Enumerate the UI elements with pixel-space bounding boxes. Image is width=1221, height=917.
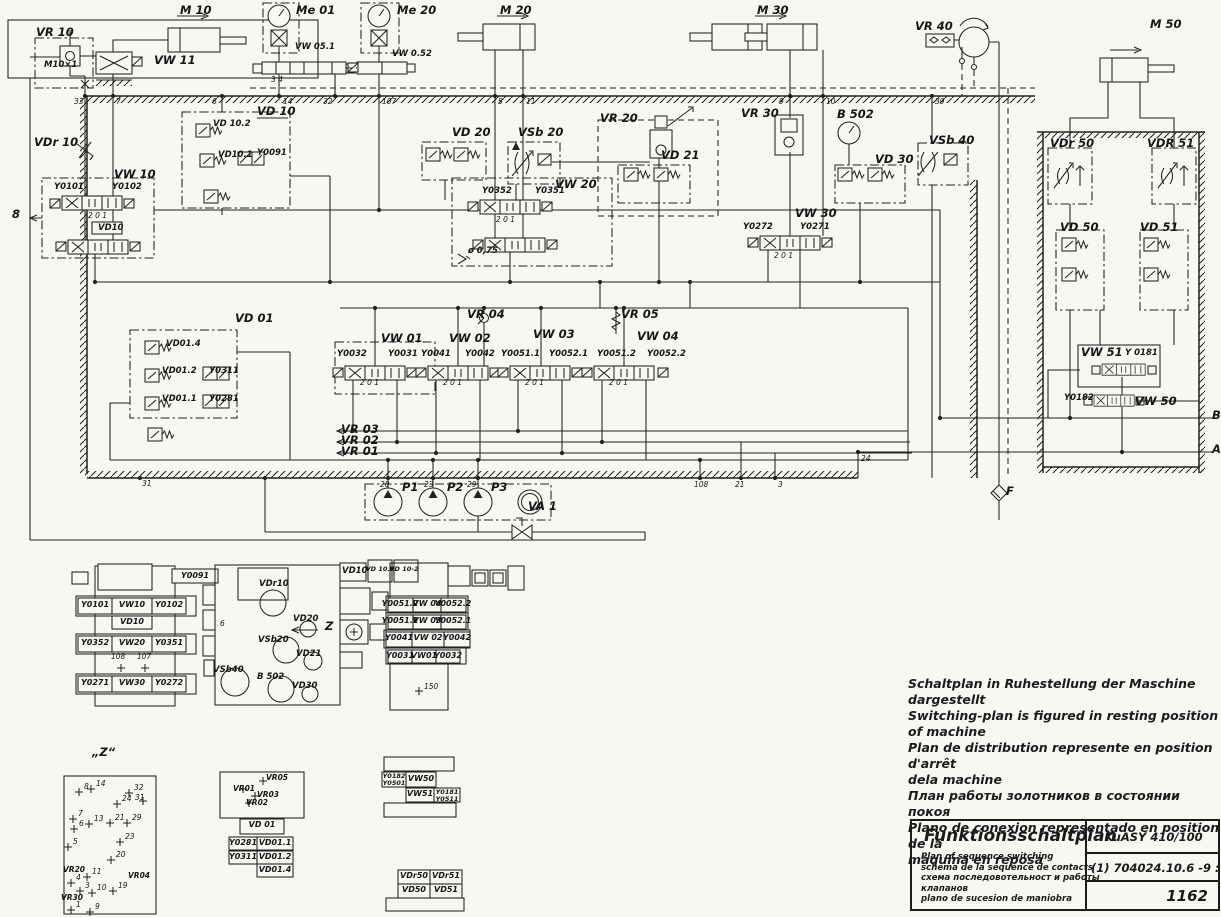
label-b_port: B [1212,410,1221,422]
label-n24: 24 [861,455,871,463]
label-mv6_vdr50: VDr50 [400,872,428,880]
label-z9: 9 [95,903,100,911]
label-p2: P2 [447,482,463,494]
label-y0051_1: Y0051.1 [501,350,540,359]
label-me20: Me 20 [397,5,436,17]
label-z19: 19 [118,882,128,890]
label-mv1_107: 107 [137,653,151,661]
label-m50: M 50 [1150,19,1181,31]
label-z5: 5 [73,838,78,846]
label-z20: 20 [116,851,126,859]
label-y0101: Y0101 [54,183,84,192]
label-mv5_vw50: VW50 [408,775,434,783]
label-mv1_vd10: VD10 [120,618,144,626]
label-vw11: VW 11 [154,55,196,67]
label-m10x1: M10×1 [44,61,77,70]
label-mv3_150: 150 [424,683,438,691]
label-mv1_y0351: Y0351 [155,639,183,647]
subtitle-en: Plan of sequence switching [921,852,1100,863]
label-n33: 33 [74,98,84,106]
note-line-ru: План работы золотников в состоянии покоя [908,788,1220,820]
label-n9: 9 [779,98,784,106]
label-vd01_4: VD01.4 [166,340,201,349]
label-mv1_vw20: VW20 [119,639,145,647]
label-vr30: VR 30 [741,108,779,120]
label-n7: 7 [116,98,121,106]
label-a_port: A [1212,444,1221,456]
label-mv1_y0272: Y0272 [155,679,183,687]
label-z14: 14 [96,780,106,788]
label-vd10s: VD10 [98,224,123,233]
label-mv1_y0101: Y0101 [81,601,109,609]
label-y0352: Y0352 [482,187,512,196]
label-z1: 1 [76,901,81,909]
label-mvr_vd01: VD 01 [249,821,276,829]
label-vw03: VW 03 [533,329,575,341]
label-vw052: VW 0.52 [392,50,432,59]
label-vw04: VW 04 [637,331,679,343]
label-mv1_y0091: Y0091 [181,572,209,580]
label-vdr10: VDr 10 [34,137,78,149]
label-mv2_vsb40: VSb40 [213,666,244,675]
label-z_title: „Z“ [92,747,115,759]
label-vw051: VW 05.1 [295,43,335,52]
label-n31: 31 [142,480,152,488]
label-mvr_vr02: VR02 [246,799,268,807]
drawing-number: (1) 704024.10.6 -9 : 013 [1091,861,1221,875]
label-vdr51: VDR 51 [1147,138,1194,150]
label-y0091: Y0091 [257,149,287,158]
title-block: Funktionsschaltplan Plan of sequence swi… [910,819,1220,911]
sheet-number: 1162 [1166,887,1208,905]
label-y0271: Y0271 [800,223,830,232]
label-mv2_vd21: VD21 [296,650,321,659]
label-y0351: Y0351 [535,187,565,196]
label-vw30: VW 30 [795,208,837,220]
label-mvr_y0281: Y0281 [229,839,257,847]
label-vd01: VD 01 [235,313,273,325]
drawing-number-cell: (1) 704024.10.6 -9 : 013 [1085,852,1220,882]
label-phi075: ø 0,75 [468,247,498,256]
label-z21: 21 [115,814,125,822]
label-zvr04: VR04 [128,872,150,880]
label-p1: P1 [402,482,418,494]
label-z24: 24 [122,795,132,803]
label-va1: VA 1 [528,501,557,513]
label-mv3_y0032: Y0032 [434,652,462,660]
label-z10: 10 [97,884,107,892]
label-vw10: VW 10 [114,169,156,181]
label-n6: 6 [212,98,217,106]
label-y0181: Y 0181 [1125,349,1158,358]
label-vr40: VR 40 [915,21,953,33]
label-mv2_b502: B 502 [257,673,284,682]
subtitle-ru1: схема последовотельност и работы [921,873,1100,884]
model-cell: KuASY 410/100 [1085,821,1220,852]
label-vdr50: VDr 50 [1050,138,1094,150]
label-mv2_vsb20: VSb20 [258,636,289,645]
label-m30: M 30 [757,5,788,17]
hydraulic-schematic-sheet: M 10Me 01Me 20M 20M 30VR 40M 50VR 10VW 1… [0,0,1221,917]
label-mv1_6: 6 [220,620,225,628]
note-line-de: Schaltplan in Ruhestellung der Maschine … [908,676,1220,708]
label-mv2_vd20: VD20 [293,615,318,624]
note-line-fr1: Plan de distribution represente en posit… [908,740,1220,772]
label-f_lbl: F [1006,486,1014,498]
label-mv2_vd102: VD 10-2 [390,566,419,573]
label-z31: 31 [135,794,145,802]
label-z13: 13 [94,815,104,823]
label-mv1_y0271: Y0271 [81,679,109,687]
label-z32: 32 [134,784,144,792]
label-y0311: Y0311 [209,367,239,376]
label-n39: 39 [935,98,945,106]
label-n11: 11 [526,98,536,106]
label-zvr20: VR20 [63,866,85,874]
label-vd10_1: VD10.1 [218,151,253,160]
label-mv5_vw51: VW51 [407,790,433,798]
subtitle-fr: schema de la sequence de contacts [921,863,1100,874]
label-n29: 29 [467,481,477,489]
label-z6: 6 [79,820,84,828]
label-vd01_2: VD01.2 [162,367,197,376]
label-n3: 3 [778,481,783,489]
label-n23: 23 [424,481,434,489]
label-mv6_vd51: VD51 [434,886,458,894]
label-vd30: VD 30 [875,154,913,166]
label-y0031: Y0031 [388,350,418,359]
label-vw51_lbl: VW 51 [1081,347,1123,359]
label-mv6_vdr51: VDr51 [432,872,460,880]
label-mv3_y0031: Y0031 [386,652,414,660]
label-z4: 4 [76,874,81,882]
machine-model: KuASY 410/100 [1087,830,1220,844]
label-z8: 8 [84,783,89,791]
label-n107: 107 [382,98,396,106]
label-vd51: VD 51 [1140,222,1178,234]
label-mv3_y0042: Y0042 [443,634,471,642]
label-vsb20: VSb 20 [518,127,563,139]
label-me01: Me 01 [296,5,335,17]
subtitle-es: plano de sucesion de maniobra [921,894,1100,905]
label-mv2_vd30: VD30 [292,682,317,691]
label-y0182: Y0182 [1064,394,1094,403]
label-vd50: VD 50 [1060,222,1098,234]
label-n32: 32 [323,98,333,106]
label-y0041: Y0041 [421,350,451,359]
label-vd10_2: VD 10.2 [213,120,251,129]
label-pos_vw30: 2 0 1 [774,252,793,260]
label-p3: P3 [491,482,507,494]
label-left8: 8 [12,209,20,221]
label-y0052_2: Y0052.2 [647,350,686,359]
label-mv5_y0501: Y0501 [383,780,406,787]
label-mv1_vw30: VW30 [119,679,145,687]
label-mvr_vr05: VR05 [266,774,288,782]
label-vd10: VD 10 [257,106,295,118]
label-y0281: Y0281 [209,395,239,404]
label-vw02: VW 02 [449,333,491,345]
label-vw01: VW 01 [381,333,423,345]
label-n10: 10 [826,98,836,106]
label-mv2_vd10: VD10 [342,567,367,576]
label-mvr_vd011: VD01.1 [259,839,292,847]
label-mv6_vd50: VD50 [402,886,426,894]
label-pos_vw051: 3 4 [271,76,283,84]
label-y0102: Y0102 [112,183,142,192]
subtitle-ru2: клапанов [921,884,1100,895]
label-n20: 20 [380,481,390,489]
label-vr20: VR 20 [600,113,638,125]
label-vsb40: VSb 40 [929,135,974,147]
label-mv3_vw02: VW 02 [414,634,443,642]
label-vr10: VR 10 [36,27,74,39]
label-mv1_y0102: Y0102 [155,601,183,609]
label-z7: 7 [78,810,83,818]
label-pos_vw04: 2 0 1 [609,379,628,387]
label-n21: 21 [735,481,745,489]
label-vd20: VD 20 [452,127,490,139]
label-mv3_y0041: Y0041 [385,634,413,642]
label-b502: B 502 [837,109,874,121]
label-y0052_1: Y0052.1 [549,350,588,359]
label-pos_vw10: 2 0 1 [88,212,107,220]
label-mv3_y00522: Y0052.2 [435,600,472,608]
label-mv1_y0352: Y0352 [81,639,109,647]
label-vr05: VR 05 [621,309,659,321]
label-y0042: Y0042 [465,350,495,359]
label-mvr_y0311: Y0311 [229,853,257,861]
label-pos_vw01: 2 0 1 [360,379,379,387]
label-mvr_vr01: VR01 [233,785,255,793]
label-m20: M 20 [500,5,531,17]
label-m10: M 10 [180,5,211,17]
label-vr04: VR 04 [467,309,505,321]
label-vr01: VR 01 [341,446,379,458]
label-z3: 3 [85,882,90,890]
label-y0272: Y0272 [743,223,773,232]
label-vw50_lbl: VW 50 [1135,396,1177,408]
label-z29: 29 [132,814,142,822]
label-mv1_vw10: VW10 [119,601,145,609]
label-mvr_vd012: VD01.2 [259,853,292,861]
label-y0051_2: Y0051.2 [597,350,636,359]
label-mv2_vdr10: VDr10 [259,580,289,589]
label-pos_vw20: 2 0 1 [496,216,515,224]
label-mv3_y00521: Y0052.1 [435,617,472,625]
label-y0032: Y0032 [337,350,367,359]
drawing-subtitles: Plan of sequence switching schema de la … [921,852,1100,905]
label-mv5_y0511: Y0511 [436,796,459,803]
label-n5: 5 [498,98,503,106]
label-vd01_1: VD01.1 [162,395,197,404]
label-n108: 108 [694,481,708,489]
label-z23: 23 [125,833,135,841]
label-z11: 11 [92,868,102,876]
label-mv1_108: 108 [111,653,125,661]
label-mvr_vd014: VD01.4 [259,866,292,874]
label-vd21: VD 21 [661,150,699,162]
note-line-en: Switching-plan is figured in resting pos… [908,708,1220,740]
label-n14: 14 [283,98,293,106]
sheet-number-cell: 1162 [1085,880,1220,911]
note-line-fr2: dela machine [908,772,1220,788]
label-pos_vw03: 2 0 1 [525,379,544,387]
label-z_lbl: Z [325,621,333,633]
label-pos_vw02: 2 0 1 [443,379,462,387]
